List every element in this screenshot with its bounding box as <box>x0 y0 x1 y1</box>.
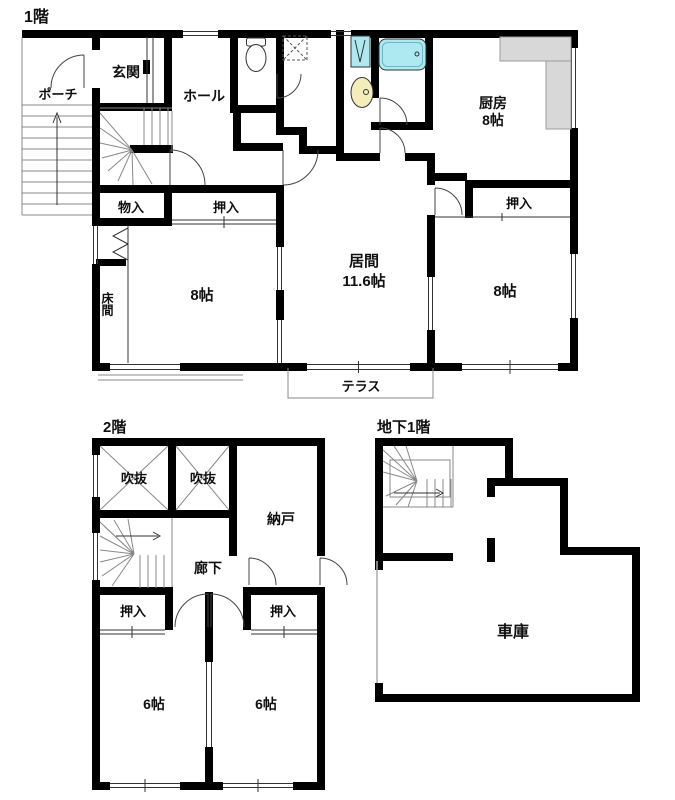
label-kitchen-size: 8帖 <box>482 112 504 128</box>
label-washitsu-right-size: 8帖 <box>493 282 516 300</box>
washer-pan-icon <box>351 36 370 67</box>
label-storeroom: 納戸 <box>267 511 295 527</box>
label-2f-oshiire-left: 押入 <box>120 604 146 619</box>
label-void-left: 吹抜 <box>121 471 148 486</box>
label-oshiire-kitchen: 押入 <box>506 196 532 211</box>
floor-plan-drawing: 1階 ポーチ 玄関 ホール 厨房 8帖 押入 物入 押入 床間 8帖 居間 11… <box>0 0 675 800</box>
bathtub-icon <box>379 39 426 70</box>
label-living: 居間 <box>349 253 379 270</box>
label-oshiire-left: 押入 <box>213 200 239 215</box>
label-1f-title: 1階 <box>24 8 49 26</box>
label-2f-oshiire-right: 押入 <box>270 604 296 619</box>
label-void-right: 吹抜 <box>190 471 217 486</box>
label-genkan: 玄関 <box>112 64 140 80</box>
floor-plan-page: 1階 ポーチ 玄関 ホール 厨房 8帖 押入 物入 押入 床間 8帖 居間 11… <box>0 0 675 800</box>
label-garage: 車庫 <box>497 622 529 641</box>
label-room-left-size: 6帖 <box>143 696 165 712</box>
label-hall: ホール <box>183 88 225 104</box>
label-living-size: 11.6帖 <box>342 272 385 290</box>
toilet-icon <box>246 38 266 72</box>
label-washitsu-left-size: 8帖 <box>190 286 213 304</box>
label-2f-title: 2階 <box>103 418 126 436</box>
washbasin-icon <box>351 78 373 108</box>
label-terrace: テラス <box>342 379 381 394</box>
label-kitchen: 厨房 <box>479 95 507 111</box>
label-b1-title: 地下1階 <box>377 418 430 436</box>
label-porch: ポーチ <box>38 87 77 102</box>
label-tokonoma: 床間 <box>100 291 114 317</box>
label-corridor: 廊下 <box>194 560 222 576</box>
label-monoire: 物入 <box>118 200 144 215</box>
label-room-right-size: 6帖 <box>255 696 277 712</box>
